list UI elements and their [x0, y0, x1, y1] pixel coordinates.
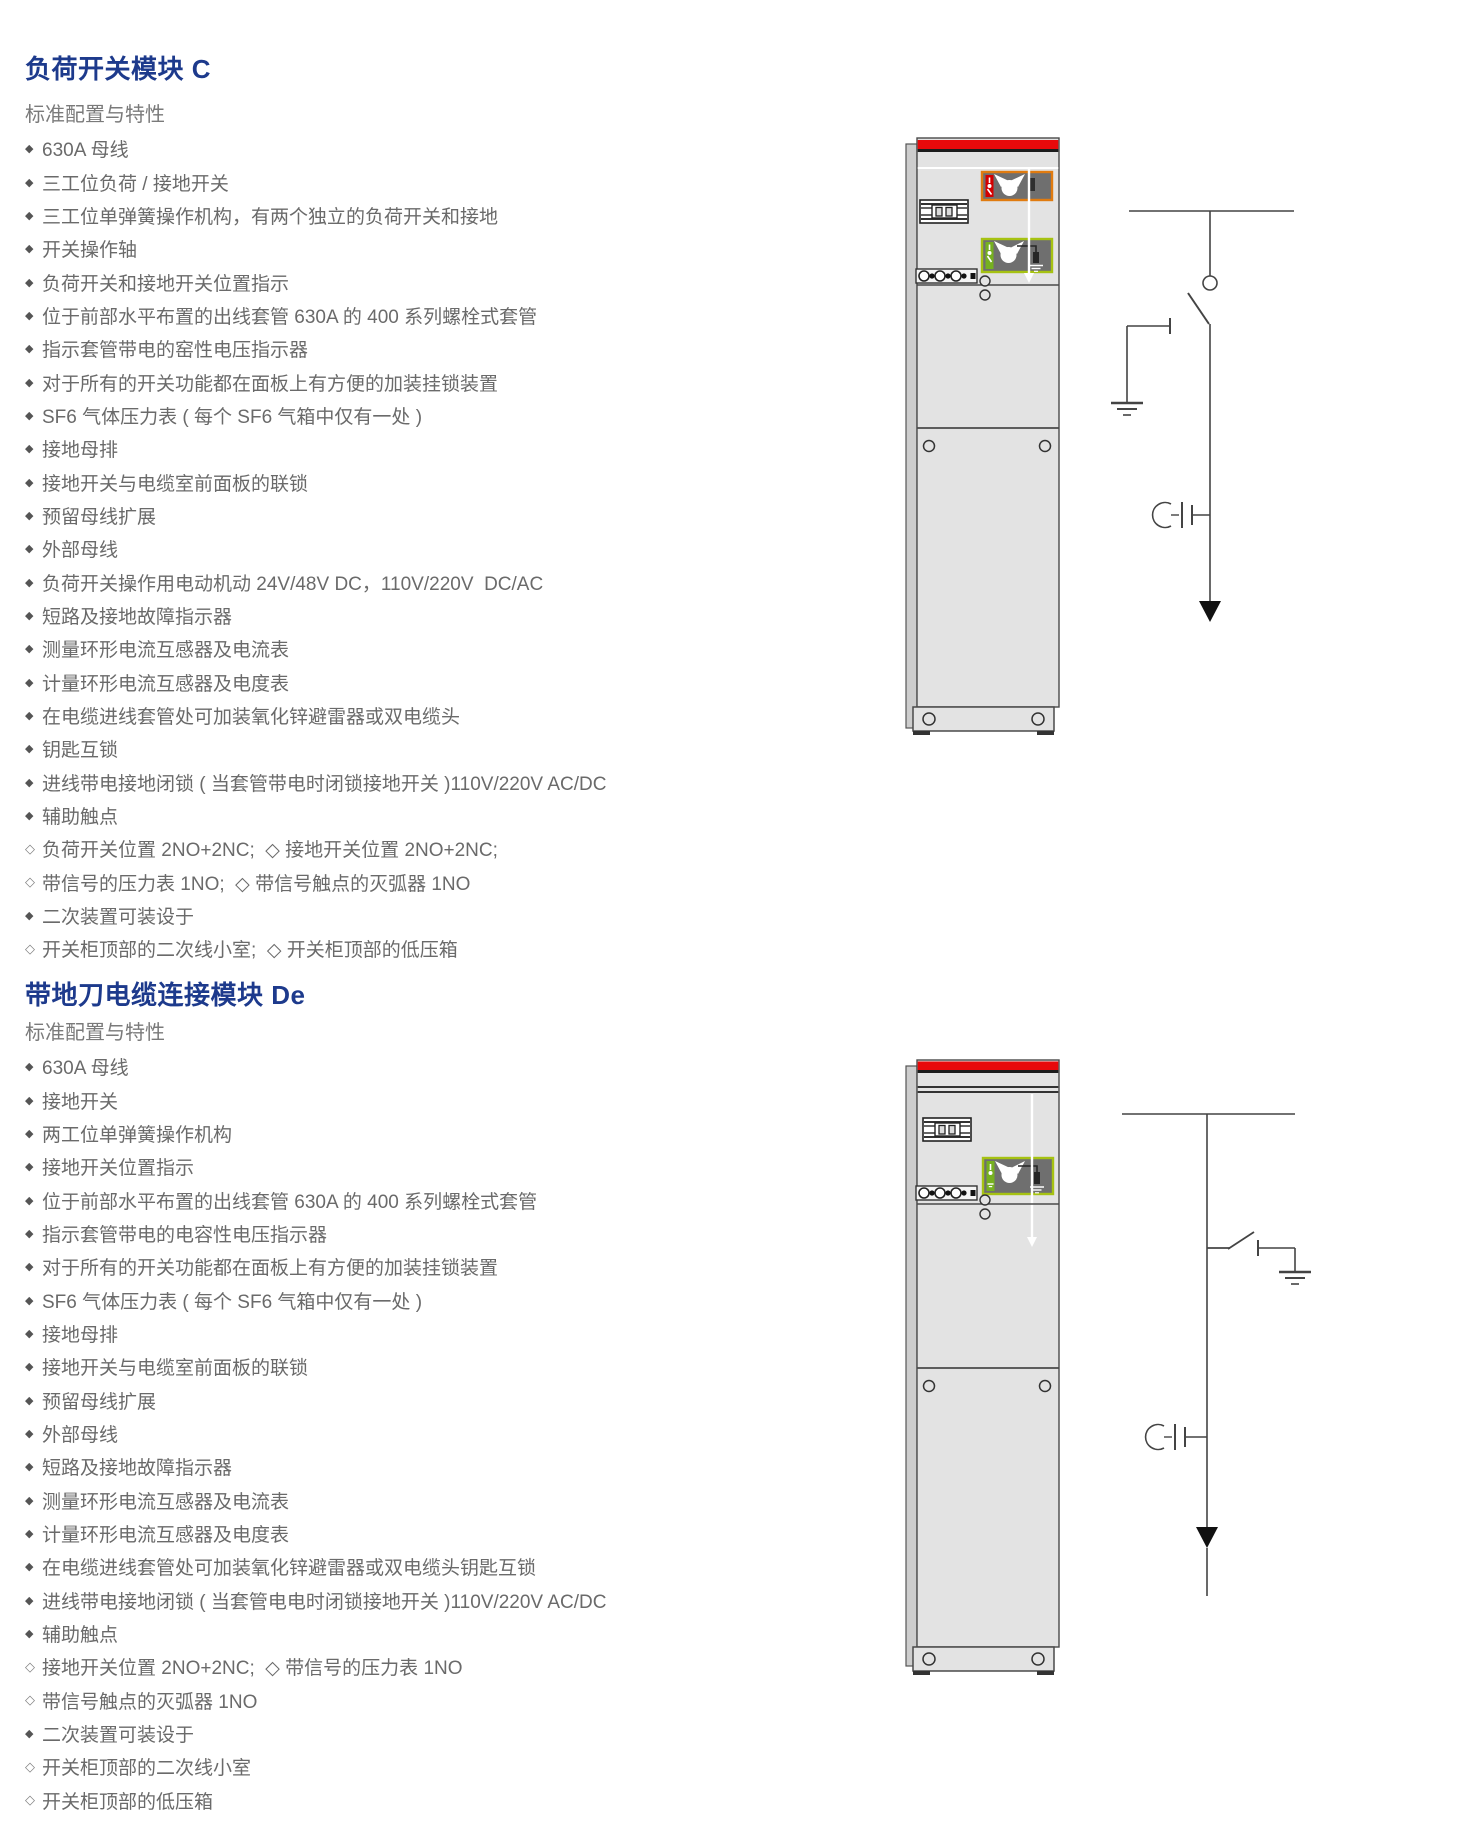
knob: [980, 1195, 990, 1205]
list-item-text: 钥匙互锁: [42, 735, 118, 762]
list-item: ◆接地开关: [25, 1083, 765, 1116]
list-item: ◆辅助触点: [25, 1617, 765, 1650]
diamond-bullet-icon: ◆: [25, 1327, 42, 1340]
list-item: ◆位于前部水平布置的出线套管 630A 的 400 系列螺栓式套管: [25, 299, 765, 332]
diamond-bullet-icon: ◆: [25, 1594, 42, 1607]
list-item: ◆辅助触点: [25, 799, 765, 832]
list-item-text: 开关柜顶部的二次线小室; ◇ 开关柜顶部的低压箱: [42, 935, 458, 962]
diamond-bullet-icon: ◆: [25, 142, 42, 155]
list-item: ◆三工位单弹簧操作机构，有两个独立的负荷开关和接地: [25, 199, 765, 232]
diamond-bullet-icon: ◆: [25, 709, 42, 722]
knob: [980, 1209, 990, 1219]
cabinet-front-panel: [917, 1060, 1059, 1647]
list-item: ◆630A 母线: [25, 1050, 765, 1083]
list-item: ◆接地开关与电缆室前面板的联锁: [25, 1350, 765, 1383]
hollow-diamond-bullet-icon: ◇: [25, 874, 42, 890]
list-item-text: 测量环形电流互感器及电流表: [42, 635, 289, 662]
diamond-bullet-icon: ◆: [25, 176, 42, 189]
list-item: ◆进线带电接地闭锁 ( 当套管电电时闭锁接地开关 )110V/220V AC/D…: [25, 1584, 765, 1617]
cabinet-foot: [1037, 1671, 1054, 1675]
list-item: ◆进线带电接地闭锁 ( 当套管带电时闭锁接地开关 )110V/220V AC/D…: [25, 766, 765, 799]
diamond-bullet-icon: ◆: [25, 1627, 42, 1640]
list-item: ◆指示套管带电的窑性电压指示器: [25, 332, 765, 365]
section-subtitle: 标准配置与特性: [25, 102, 765, 128]
cabinet-foot: [1037, 731, 1054, 735]
list-item: ◆在电缆进线套管处可加装氧化锌避雷器或双电缆头: [25, 699, 765, 732]
list-item-text: 指示套管带电的电容性电压指示器: [42, 1220, 327, 1247]
pressure-gauge-panel: [923, 1118, 971, 1141]
base-strip: [913, 1647, 1054, 1671]
diamond-bullet-icon: ◆: [25, 576, 42, 589]
list-item-text: 三工位单弹簧操作机构，有两个独立的负荷开关和接地: [42, 202, 498, 229]
diamond-bullet-icon: ◆: [25, 1227, 42, 1240]
list-item: ◇接地开关位置 2NO+2NC; ◇ 带信号的压力表 1NO: [25, 1650, 765, 1683]
earthing-switch-branch: [1207, 1232, 1311, 1284]
list-item-text: 在电缆进线套管处可加装氧化锌避雷器或双电缆头: [42, 702, 460, 729]
cable-arrow-icon: [1196, 1527, 1218, 1548]
section-title: 带地刀电缆连接模块 De: [25, 978, 765, 1012]
top-dark-line: [918, 149, 1059, 152]
diamond-bullet-icon: ◆: [25, 1360, 42, 1373]
list-item: ◆预留母线扩展: [25, 1383, 765, 1416]
list-item: ◆预留母线扩展: [25, 499, 765, 532]
diamond-bullet-icon: ◆: [25, 309, 42, 322]
diamond-bullet-icon: ◆: [25, 1427, 42, 1440]
hollow-diamond-bullet-icon: ◇: [25, 1792, 42, 1808]
diamond-bullet-icon: ◆: [25, 742, 42, 755]
switch-blade: [1188, 293, 1209, 324]
catalog-page: 负荷开关模块 C 标准配置与特性 ◆630A 母线◆三工位负荷 / 接地开关◆三…: [0, 0, 1464, 1834]
list-item: ◆测量环形电流互感器及电流表: [25, 1483, 765, 1516]
diamond-bullet-icon: ◆: [25, 542, 42, 555]
list-item: ◆接地母排: [25, 1317, 765, 1350]
list-item: ◇带信号的压力表 1NO; ◇ 带信号触点的灭弧器 1NO: [25, 866, 765, 899]
switch-indicator-panel: [982, 172, 1052, 200]
cabinet-side-wall: [906, 1066, 917, 1666]
list-item-text: 外部母线: [42, 1420, 118, 1447]
diamond-bullet-icon: ◆: [25, 1127, 42, 1140]
list-item-text: 两工位单弹簧操作机构: [42, 1120, 232, 1147]
earth-indicator-panel: [983, 1158, 1053, 1194]
knob: [980, 290, 990, 300]
diamond-bullet-icon: ◆: [25, 476, 42, 489]
operating-points-row: [916, 1186, 977, 1200]
list-item-text: 开关柜顶部的低压箱: [42, 1787, 213, 1814]
diamond-bullet-icon: ◆: [25, 1260, 42, 1273]
list-item-text: 位于前部水平布置的出线套管 630A 的 400 系列螺栓式套管: [42, 302, 537, 329]
diamond-bullet-icon: ◆: [25, 409, 42, 422]
diamond-bullet-icon: ◆: [25, 1460, 42, 1473]
cable-arrow-icon: [1199, 601, 1221, 622]
cabinet-front-view-de: [905, 1058, 1060, 1676]
list-item-text: 指示套管带电的窑性电压指示器: [42, 335, 308, 362]
list-item: ◆SF6 气体压力表 ( 每个 SF6 气箱中仅有一处 ): [25, 1283, 765, 1316]
list-item-text: SF6 气体压力表 ( 每个 SF6 气箱中仅有一处 ): [42, 1287, 422, 1314]
hollow-diamond-bullet-icon: ◇: [25, 941, 42, 957]
top-red-band: [918, 140, 1059, 149]
list-item: ◇开关柜顶部的二次线小室; ◇ 开关柜顶部的低压箱: [25, 932, 765, 965]
list-item: ◇开关柜顶部的二次线小室: [25, 1750, 765, 1783]
list-item-text: 负荷开关和接地开关位置指示: [42, 269, 289, 296]
knob: [980, 276, 990, 286]
section-module-de: 带地刀电缆连接模块 De 标准配置与特性 ◆630A 母线◆接地开关◆两工位单弹…: [25, 978, 765, 1817]
list-item: ◆开关操作轴: [25, 232, 765, 265]
list-item-text: 进线带电接地闭锁 ( 当套管带电时闭锁接地开关 )110V/220V AC/DC: [42, 769, 606, 796]
diamond-bullet-icon: ◆: [25, 509, 42, 522]
list-item-text: 开关柜顶部的二次线小室: [42, 1753, 251, 1780]
list-item-text: 外部母线: [42, 535, 118, 562]
list-item-text: 630A 母线: [42, 135, 129, 162]
list-item-text: 接地母排: [42, 435, 118, 462]
list-item: ◆630A 母线: [25, 132, 765, 165]
list-item: ◆接地母排: [25, 432, 765, 465]
top-red-band: [918, 1062, 1059, 1071]
earth-symbol-icon: [1279, 1272, 1311, 1284]
list-item: ◇负荷开关位置 2NO+2NC; ◇ 接地开关位置 2NO+2NC;: [25, 832, 765, 865]
diamond-bullet-icon: ◆: [25, 1160, 42, 1173]
diamond-bullet-icon: ◆: [25, 1394, 42, 1407]
cabinet-front-view-c: [905, 136, 1060, 736]
diamond-bullet-icon: ◆: [25, 1494, 42, 1507]
list-item: ◆负荷开关操作用电动机动 24V/48V DC，110V/220V DC/AC: [25, 565, 765, 598]
list-item-text: 带信号触点的灭弧器 1NO: [42, 1687, 257, 1714]
list-item: ◆三工位负荷 / 接地开关: [25, 165, 765, 198]
bushing-circle: [1203, 276, 1217, 290]
list-item: ◇开关柜顶部的低压箱: [25, 1784, 765, 1817]
list-item: ◆短路及接地故障指示器: [25, 599, 765, 632]
switch-blade: [1228, 1232, 1254, 1249]
diamond-bullet-icon: ◆: [25, 676, 42, 689]
diamond-bullet-icon: ◆: [25, 909, 42, 922]
diamond-bullet-icon: ◆: [25, 376, 42, 389]
cabinet-foot: [913, 731, 930, 735]
top-dark-line: [918, 1070, 1059, 1073]
double-line-bottom: [918, 1091, 1059, 1093]
diamond-bullet-icon: ◆: [25, 1194, 42, 1207]
earth-branch: [1111, 318, 1170, 415]
list-item-text: 接地开关与电缆室前面板的联锁: [42, 1353, 308, 1380]
capacitive-voltage-indicator: [1146, 1424, 1207, 1450]
list-item: ◆在电缆进线套管处可加装氧化锌避雷器或双电缆头钥匙互锁: [25, 1550, 765, 1583]
earth-symbol-icon: [1111, 403, 1143, 415]
diamond-bullet-icon: ◆: [25, 1727, 42, 1740]
cabinet-foot: [913, 1671, 930, 1675]
list-item-text: 在电缆进线套管处可加装氧化锌避雷器或双电缆头钥匙互锁: [42, 1553, 536, 1580]
list-item-text: 短路及接地故障指示器: [42, 602, 232, 629]
list-item-text: 接地母排: [42, 1320, 118, 1347]
list-item-text: 计量环形电流互感器及电度表: [42, 669, 289, 696]
section-module-c: 负荷开关模块 C 标准配置与特性 ◆630A 母线◆三工位负荷 / 接地开关◆三…: [25, 52, 765, 966]
list-item-text: 二次装置可装设于: [42, 902, 194, 929]
list-item: ◆二次装置可装设于: [25, 899, 765, 932]
pressure-gauge-panel: [920, 200, 968, 223]
list-item: ◆短路及接地故障指示器: [25, 1450, 765, 1483]
diamond-bullet-icon: ◆: [25, 342, 42, 355]
list-item-text: 630A 母线: [42, 1053, 129, 1080]
list-item-text: 接地开关: [42, 1087, 118, 1114]
list-item: ◆对于所有的开关功能都在面板上有方便的加装挂锁装置: [25, 365, 765, 398]
diamond-bullet-icon: ◆: [25, 242, 42, 255]
list-item-text: 接地开关位置 2NO+2NC; ◇ 带信号的压力表 1NO: [42, 1653, 463, 1680]
section-subtitle: 标准配置与特性: [25, 1020, 765, 1046]
list-item-text: 接地开关与电缆室前面板的联锁: [42, 469, 308, 496]
list-item-text: 开关操作轴: [42, 235, 137, 262]
diamond-bullet-icon: ◆: [25, 642, 42, 655]
list-item: ◆二次装置可装设于: [25, 1717, 765, 1750]
list-item-text: 测量环形电流互感器及电流表: [42, 1487, 289, 1514]
list-item: ◆计量环形电流互感器及电度表: [25, 1517, 765, 1550]
list-item: ◆接地开关与电缆室前面板的联锁: [25, 465, 765, 498]
diamond-bullet-icon: ◆: [25, 1060, 42, 1073]
operating-points-row: [916, 269, 977, 283]
diamond-bullet-icon: ◆: [25, 609, 42, 622]
base-strip: [913, 707, 1054, 731]
hollow-diamond-bullet-icon: ◇: [25, 1659, 42, 1675]
diamond-bullet-icon: ◆: [25, 1094, 42, 1107]
list-item: ◆外部母线: [25, 1417, 765, 1450]
list-item: ◆钥匙互锁: [25, 732, 765, 765]
list-item: ◇带信号触点的灭弧器 1NO: [25, 1684, 765, 1717]
cabinet-side-wall: [906, 144, 917, 728]
diamond-bullet-icon: ◆: [25, 809, 42, 822]
diamond-bullet-icon: ◆: [25, 776, 42, 789]
list-item-text: 对于所有的开关功能都在面板上有方便的加装挂锁装置: [42, 1253, 498, 1280]
diamond-bullet-icon: ◆: [25, 1560, 42, 1573]
list-item-text: 对于所有的开关功能都在面板上有方便的加装挂锁装置: [42, 369, 498, 396]
list-item-text: 预留母线扩展: [42, 1387, 156, 1414]
list-item: ◆指示套管带电的电容性电压指示器: [25, 1217, 765, 1250]
diamond-bullet-icon: ◆: [25, 209, 42, 222]
single-line-diagram-c: [1108, 205, 1308, 625]
list-item-text: 计量环形电流互感器及电度表: [42, 1520, 289, 1547]
capacitive-voltage-indicator: [1153, 502, 1210, 528]
feature-list: ◆630A 母线◆接地开关◆两工位单弹簧操作机构◆接地开关位置指示◆位于前部水平…: [25, 1050, 765, 1817]
diamond-bullet-icon: ◆: [25, 276, 42, 289]
list-item-text: 负荷开关位置 2NO+2NC; ◇ 接地开关位置 2NO+2NC;: [42, 835, 498, 862]
section-title: 负荷开关模块 C: [25, 52, 765, 86]
list-item-text: 位于前部水平布置的出线套管 630A 的 400 系列螺栓式套管: [42, 1187, 537, 1214]
list-item: ◆计量环形电流互感器及电度表: [25, 666, 765, 699]
top-white-line: [918, 167, 1059, 169]
list-item-text: 预留母线扩展: [42, 502, 156, 529]
hollow-diamond-bullet-icon: ◇: [25, 841, 42, 857]
diamond-bullet-icon: ◆: [25, 1527, 42, 1540]
list-item: ◆外部母线: [25, 532, 765, 565]
list-item: ◆两工位单弹簧操作机构: [25, 1117, 765, 1150]
list-item-text: 进线带电接地闭锁 ( 当套管电电时闭锁接地开关 )110V/220V AC/DC: [42, 1587, 606, 1614]
feature-list: ◆630A 母线◆三工位负荷 / 接地开关◆三工位单弹簧操作机构，有两个独立的负…: [25, 132, 765, 966]
hollow-diamond-bullet-icon: ◇: [25, 1692, 42, 1708]
list-item: ◆负荷开关和接地开关位置指示: [25, 265, 765, 298]
double-line-top: [918, 1086, 1059, 1088]
list-item-text: 短路及接地故障指示器: [42, 1453, 232, 1480]
diamond-bullet-icon: ◆: [25, 442, 42, 455]
single-line-diagram-de: [1108, 1108, 1318, 1608]
list-item-text: 辅助触点: [42, 802, 118, 829]
diamond-bullet-icon: ◆: [25, 1294, 42, 1307]
list-item: ◆接地开关位置指示: [25, 1150, 765, 1183]
list-item: ◆测量环形电流互感器及电流表: [25, 632, 765, 665]
list-item: ◆对于所有的开关功能都在面板上有方便的加装挂锁装置: [25, 1250, 765, 1283]
list-item-text: 带信号的压力表 1NO; ◇ 带信号触点的灭弧器 1NO: [42, 869, 470, 896]
list-item-text: 二次装置可装设于: [42, 1720, 194, 1747]
earth-indicator-panel: [982, 239, 1052, 272]
list-item: ◆SF6 气体压力表 ( 每个 SF6 气箱中仅有一处 ): [25, 399, 765, 432]
list-item-text: 辅助触点: [42, 1620, 118, 1647]
list-item-text: 负荷开关操作用电动机动 24V/48V DC，110V/220V DC/AC: [42, 569, 543, 596]
list-item: ◆位于前部水平布置的出线套管 630A 的 400 系列螺栓式套管: [25, 1183, 765, 1216]
hollow-diamond-bullet-icon: ◇: [25, 1759, 42, 1775]
list-item-text: SF6 气体压力表 ( 每个 SF6 气箱中仅有一处 ): [42, 402, 422, 429]
list-item-text: 三工位负荷 / 接地开关: [42, 169, 229, 196]
list-item-text: 接地开关位置指示: [42, 1153, 194, 1180]
